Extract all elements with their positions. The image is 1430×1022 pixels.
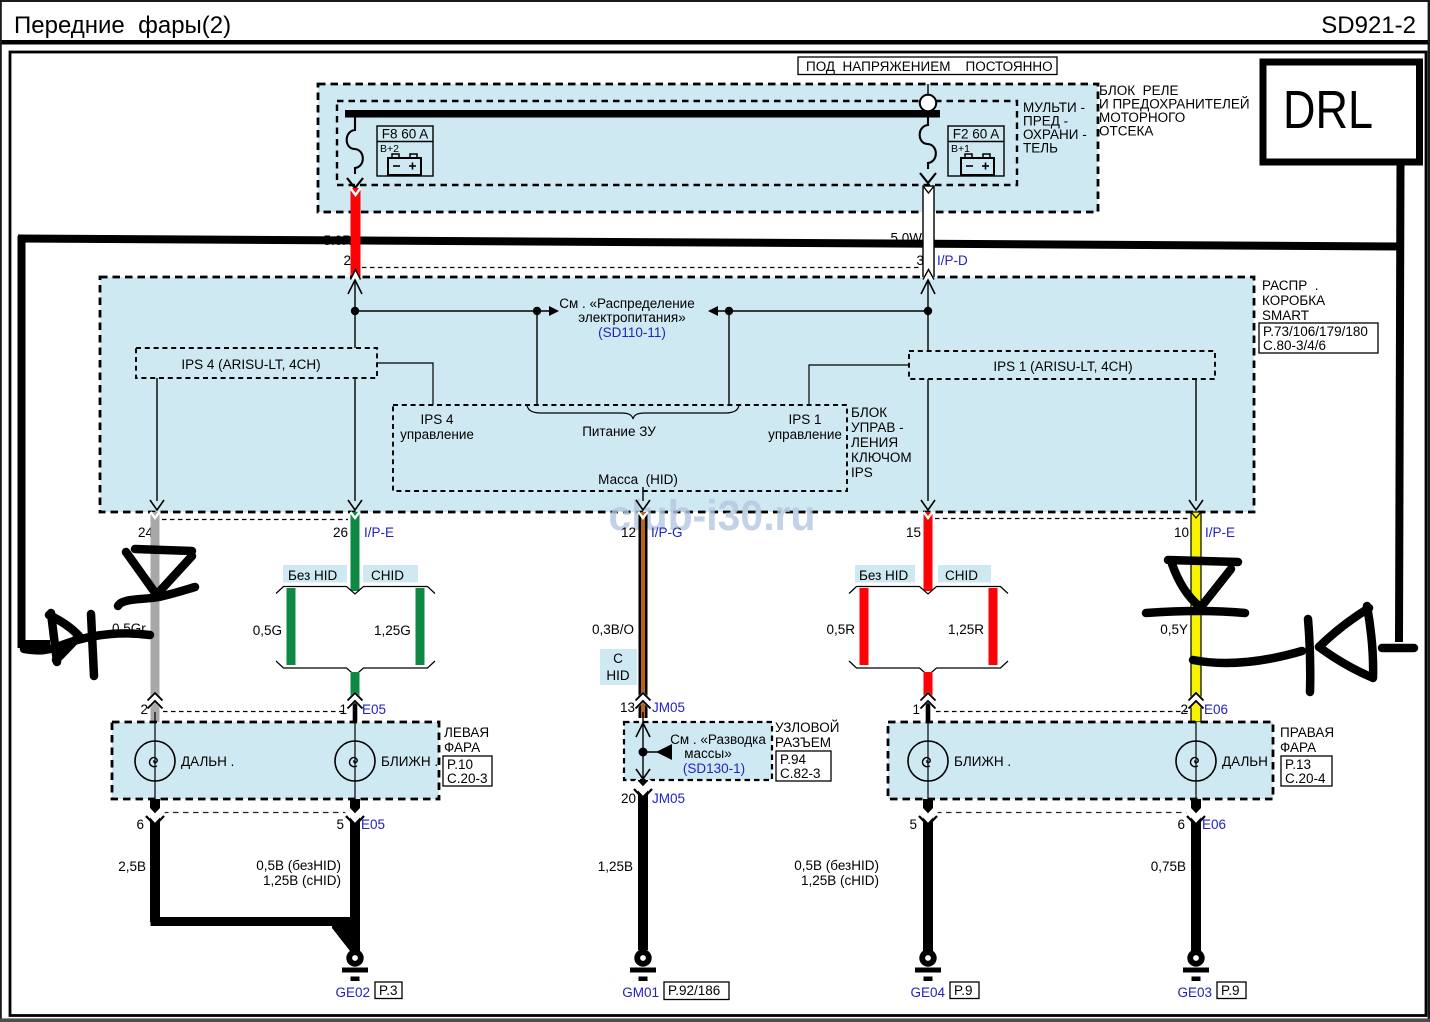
svg-text:ФАРА: ФАРА <box>444 740 480 755</box>
svg-text:20: 20 <box>621 791 636 806</box>
svg-text:1,25B (cHID): 1,25B (cHID) <box>801 873 879 888</box>
svg-text:2: 2 <box>1180 702 1188 717</box>
svg-text:E05: E05 <box>362 702 386 717</box>
svg-text:I/P-E: I/P-E <box>1205 525 1235 540</box>
svg-text:БЛИЖН .: БЛИЖН . <box>954 754 1011 769</box>
svg-text:УЗЛОВОЙ: УЗЛОВОЙ <box>775 720 839 735</box>
svg-text:БЛИЖН .: БЛИЖН . <box>381 754 438 769</box>
svg-text:БЛОК РЕЛЕИ ПРЕДОХРАНИТЕЛЕЙМОТ: БЛОК РЕЛЕИ ПРЕДОХРАНИТЕЛЕЙМОТОРНОГООТСЕК… <box>1099 83 1250 139</box>
svg-text:1: 1 <box>339 702 347 717</box>
svg-text:1: 1 <box>912 702 920 717</box>
svg-text:СHID: СHID <box>945 568 978 583</box>
svg-text:0,3B/O: 0,3B/O <box>592 622 634 637</box>
svg-text:6: 6 <box>136 817 144 832</box>
svg-text:См . «Разводка: См . «Разводка <box>670 732 766 747</box>
svg-text:(SD110-11): (SD110-11) <box>598 325 666 340</box>
svg-text:JM05: JM05 <box>652 700 685 715</box>
svg-text:Без HID: Без HID <box>859 568 909 583</box>
svg-text:0,5B (безHID): 0,5B (безHID) <box>256 858 341 873</box>
svg-text:ПРАВАЯ: ПРАВАЯ <box>1280 725 1334 740</box>
svg-text:JM05: JM05 <box>652 791 685 806</box>
svg-text:C.20-3: C.20-3 <box>447 771 488 786</box>
svg-text:P.3: P.3 <box>379 983 398 998</box>
svg-text:GE02: GE02 <box>335 985 370 1000</box>
svg-text:ФАРА: ФАРА <box>1280 740 1316 755</box>
svg-text:HID: HID <box>606 668 630 683</box>
svg-text:2,5B: 2,5B <box>118 859 146 874</box>
svg-text:15: 15 <box>906 525 921 540</box>
svg-text:26: 26 <box>333 525 348 540</box>
svg-text:0,5R: 0,5R <box>826 622 855 637</box>
svg-text:С: С <box>613 651 623 666</box>
svg-text:IPS 4 (ARISU-LT, 4CH): IPS 4 (ARISU-LT, 4CH) <box>181 357 320 372</box>
svg-text:(SD130-1): (SD130-1) <box>683 761 745 776</box>
svg-text:1,25B: 1,25B <box>598 859 633 874</box>
svg-text:0,5B (безHID): 0,5B (безHID) <box>794 858 879 873</box>
svg-text:1,25G: 1,25G <box>374 623 411 638</box>
svg-text:DRL: DRL <box>1283 80 1373 140</box>
svg-text:0,75B: 0,75B <box>1151 859 1186 874</box>
svg-text:ДАЛЬН .: ДАЛЬН . <box>181 754 234 769</box>
svg-text:P.9: P.9 <box>954 983 973 998</box>
svg-text:P.73/106/179/180: P.73/106/179/180 <box>1263 324 1368 339</box>
svg-text:B+2: B+2 <box>380 143 399 155</box>
svg-text:P.94: P.94 <box>780 752 807 767</box>
svg-text:6: 6 <box>1177 817 1185 832</box>
svg-text:5.0R: 5.0R <box>323 233 352 248</box>
svg-text:Питание ЗУ: Питание ЗУ <box>582 424 656 439</box>
svg-text:B+1: B+1 <box>951 143 970 155</box>
svg-text:I/P-G: I/P-G <box>651 525 683 540</box>
svg-text:E06: E06 <box>1204 702 1228 717</box>
svg-text:GE03: GE03 <box>1177 985 1212 1000</box>
svg-text:P.92/186: P.92/186 <box>668 983 720 998</box>
svg-text:ПОД НАПРЯЖЕНИЕМ ПОСТОЯННО: ПОД НАПРЯЖЕНИЕМ ПОСТОЯННО <box>806 59 1053 74</box>
svg-text:GM01: GM01 <box>622 985 659 1000</box>
svg-text:5: 5 <box>909 817 917 832</box>
svg-text:2: 2 <box>343 253 351 268</box>
svg-text:C.80-3/4/6: C.80-3/4/6 <box>1263 338 1326 353</box>
svg-text:5: 5 <box>336 817 344 832</box>
svg-text:См . «Распределениеэлектропита: См . «Распределениеэлектропитания» <box>559 296 694 325</box>
svg-text:F2 60 A: F2 60 A <box>953 127 1000 142</box>
svg-text:Без HID: Без HID <box>288 568 338 583</box>
svg-text:I/P-E: I/P-E <box>364 525 394 540</box>
svg-text:C.82-3: C.82-3 <box>780 766 821 781</box>
svg-text:1,25B (cHID): 1,25B (cHID) <box>263 873 341 888</box>
svg-text:P.10: P.10 <box>447 757 473 772</box>
svg-text:IPS 1 (ARISU-LT, 4CH): IPS 1 (ARISU-LT, 4CH) <box>993 359 1132 374</box>
svg-text:E06: E06 <box>1202 817 1226 832</box>
svg-text:2: 2 <box>140 702 148 717</box>
svg-text:E05: E05 <box>361 817 385 832</box>
svg-text:P.13: P.13 <box>1285 757 1311 772</box>
svg-text:13: 13 <box>620 700 635 715</box>
svg-text:10: 10 <box>1174 525 1189 540</box>
svg-text:12: 12 <box>621 525 636 540</box>
svg-text:GE04: GE04 <box>910 985 945 1000</box>
svg-text:ЛЕВАЯ: ЛЕВАЯ <box>444 725 489 740</box>
svg-text:РАЗЪЕМ: РАЗЪЕМ <box>775 735 831 750</box>
svg-text:C.20-4: C.20-4 <box>1285 771 1326 786</box>
svg-text:ДАЛЬН .: ДАЛЬН . <box>1222 754 1275 769</box>
svg-text:I/P-D: I/P-D <box>937 253 968 268</box>
svg-text:РАСПР .КОРОБКАSMART: РАСПР .КОРОБКАSMART <box>1262 278 1325 323</box>
svg-text:СHID: СHID <box>371 568 404 583</box>
svg-text:массы»: массы» <box>684 746 732 761</box>
svg-text:0,5G: 0,5G <box>253 623 282 638</box>
svg-text:Масса (HID): Масса (HID) <box>598 472 678 487</box>
svg-text:3: 3 <box>916 253 924 268</box>
svg-text:1,25R: 1,25R <box>948 622 984 637</box>
svg-text:P.9: P.9 <box>1221 983 1240 998</box>
svg-text:SD921-2: SD921-2 <box>1321 12 1416 39</box>
svg-text:0,5Y: 0,5Y <box>1160 622 1188 637</box>
svg-text:F8 60 A: F8 60 A <box>382 127 429 142</box>
svg-text:Передние фары(2): Передние фары(2) <box>14 12 231 39</box>
svg-text:5.0W: 5.0W <box>890 231 922 246</box>
